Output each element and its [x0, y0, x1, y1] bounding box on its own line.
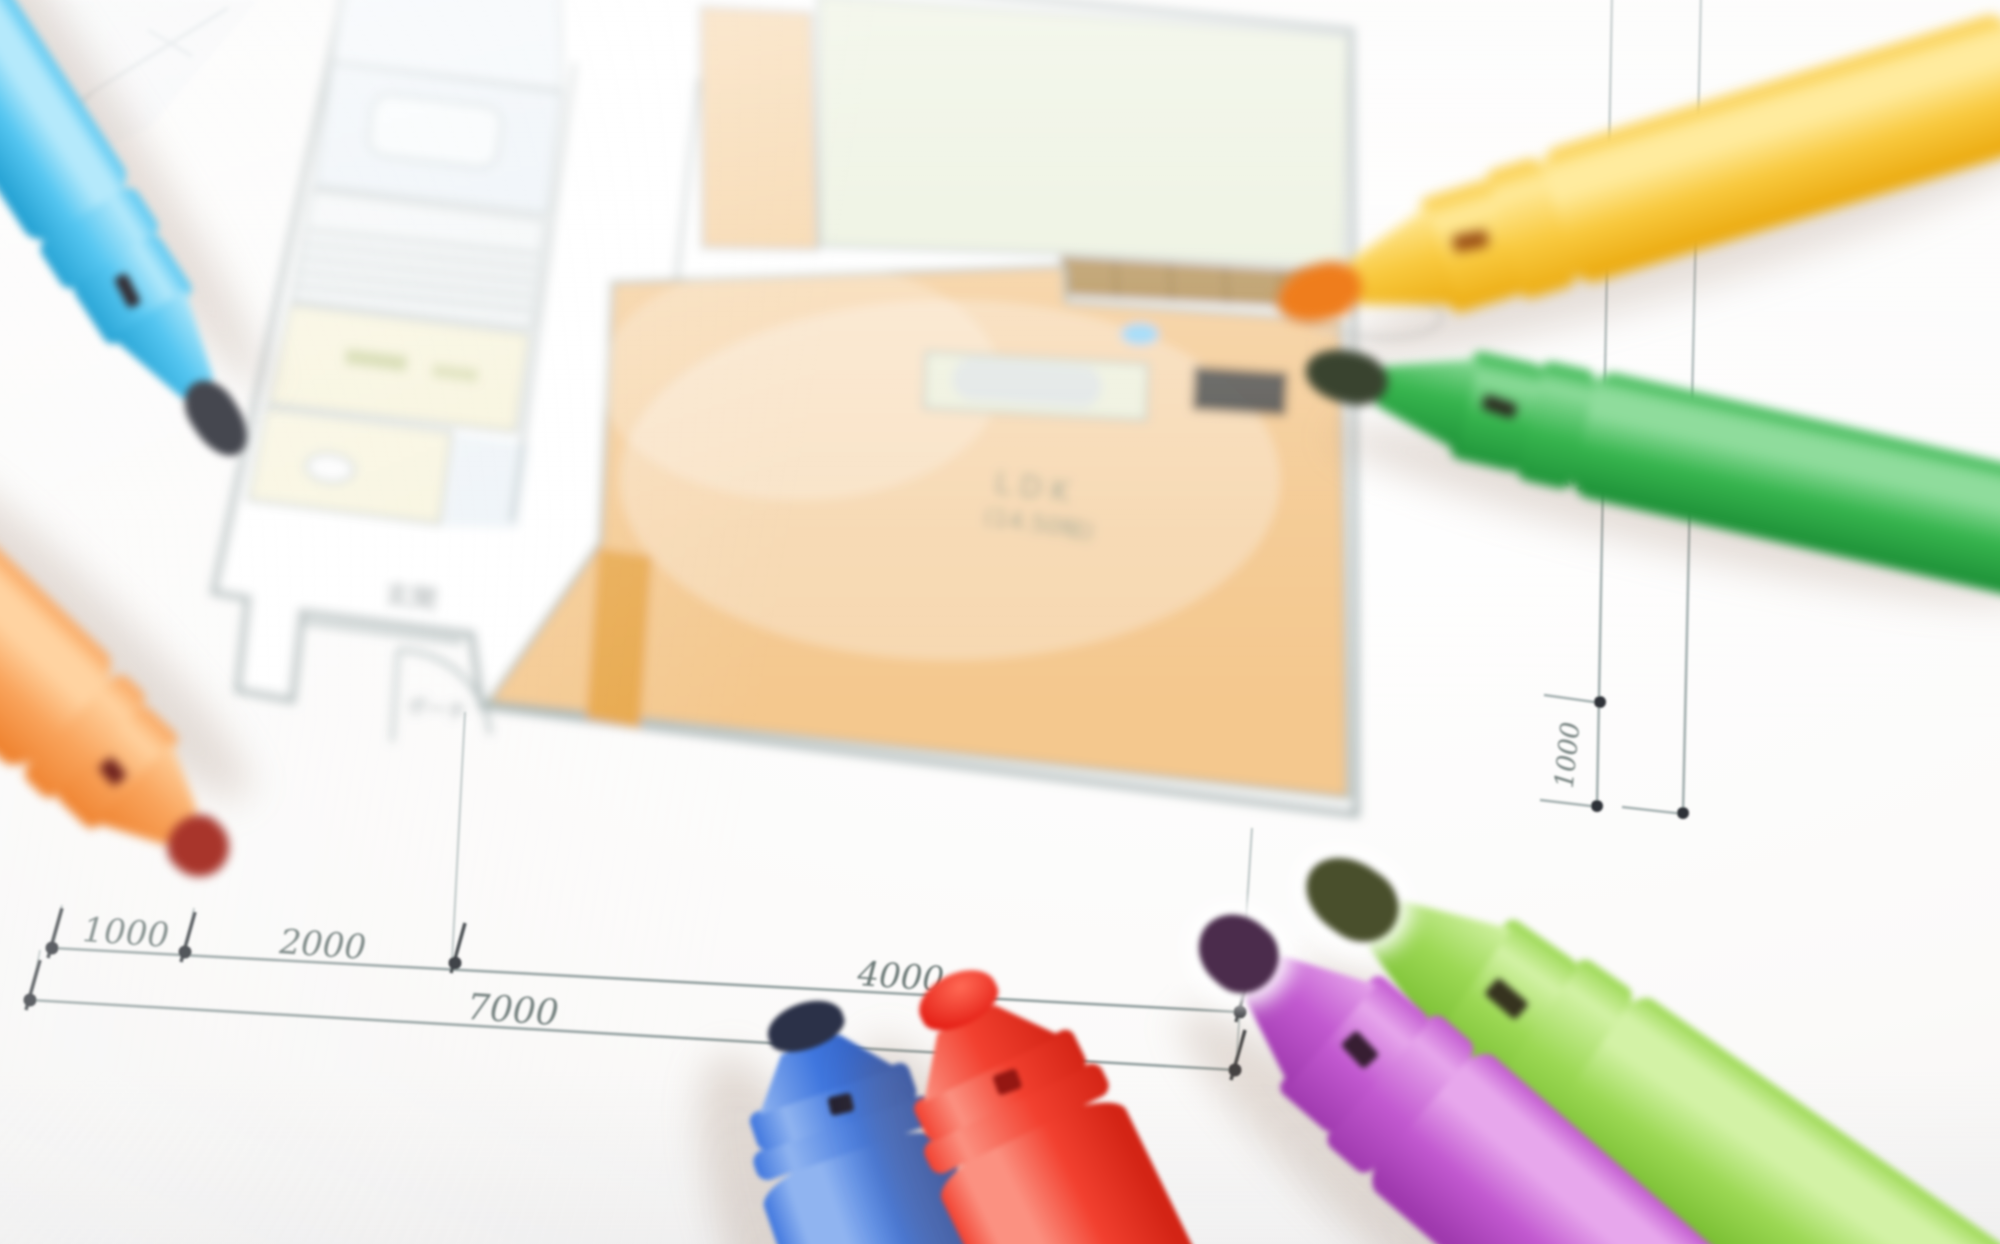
door-leaf	[392, 650, 398, 742]
entrance-label: 玄関	[383, 580, 438, 616]
dim-label-right-1000: 1000	[1550, 721, 1587, 790]
photo-floorplan-with-markers: 玄関 ポーチ LDK (14.50帖)	[0, 0, 2000, 1244]
stove	[1192, 366, 1288, 416]
dim-label-2000: 2000	[277, 922, 367, 968]
hallway-floor	[700, 6, 818, 250]
sink	[1121, 323, 1159, 345]
dim-label-1000: 1000	[81, 910, 170, 956]
dim-label-7000: 7000	[466, 987, 560, 1034]
porch-label: ポーチ	[406, 693, 468, 724]
tatami-area	[818, 0, 1348, 268]
